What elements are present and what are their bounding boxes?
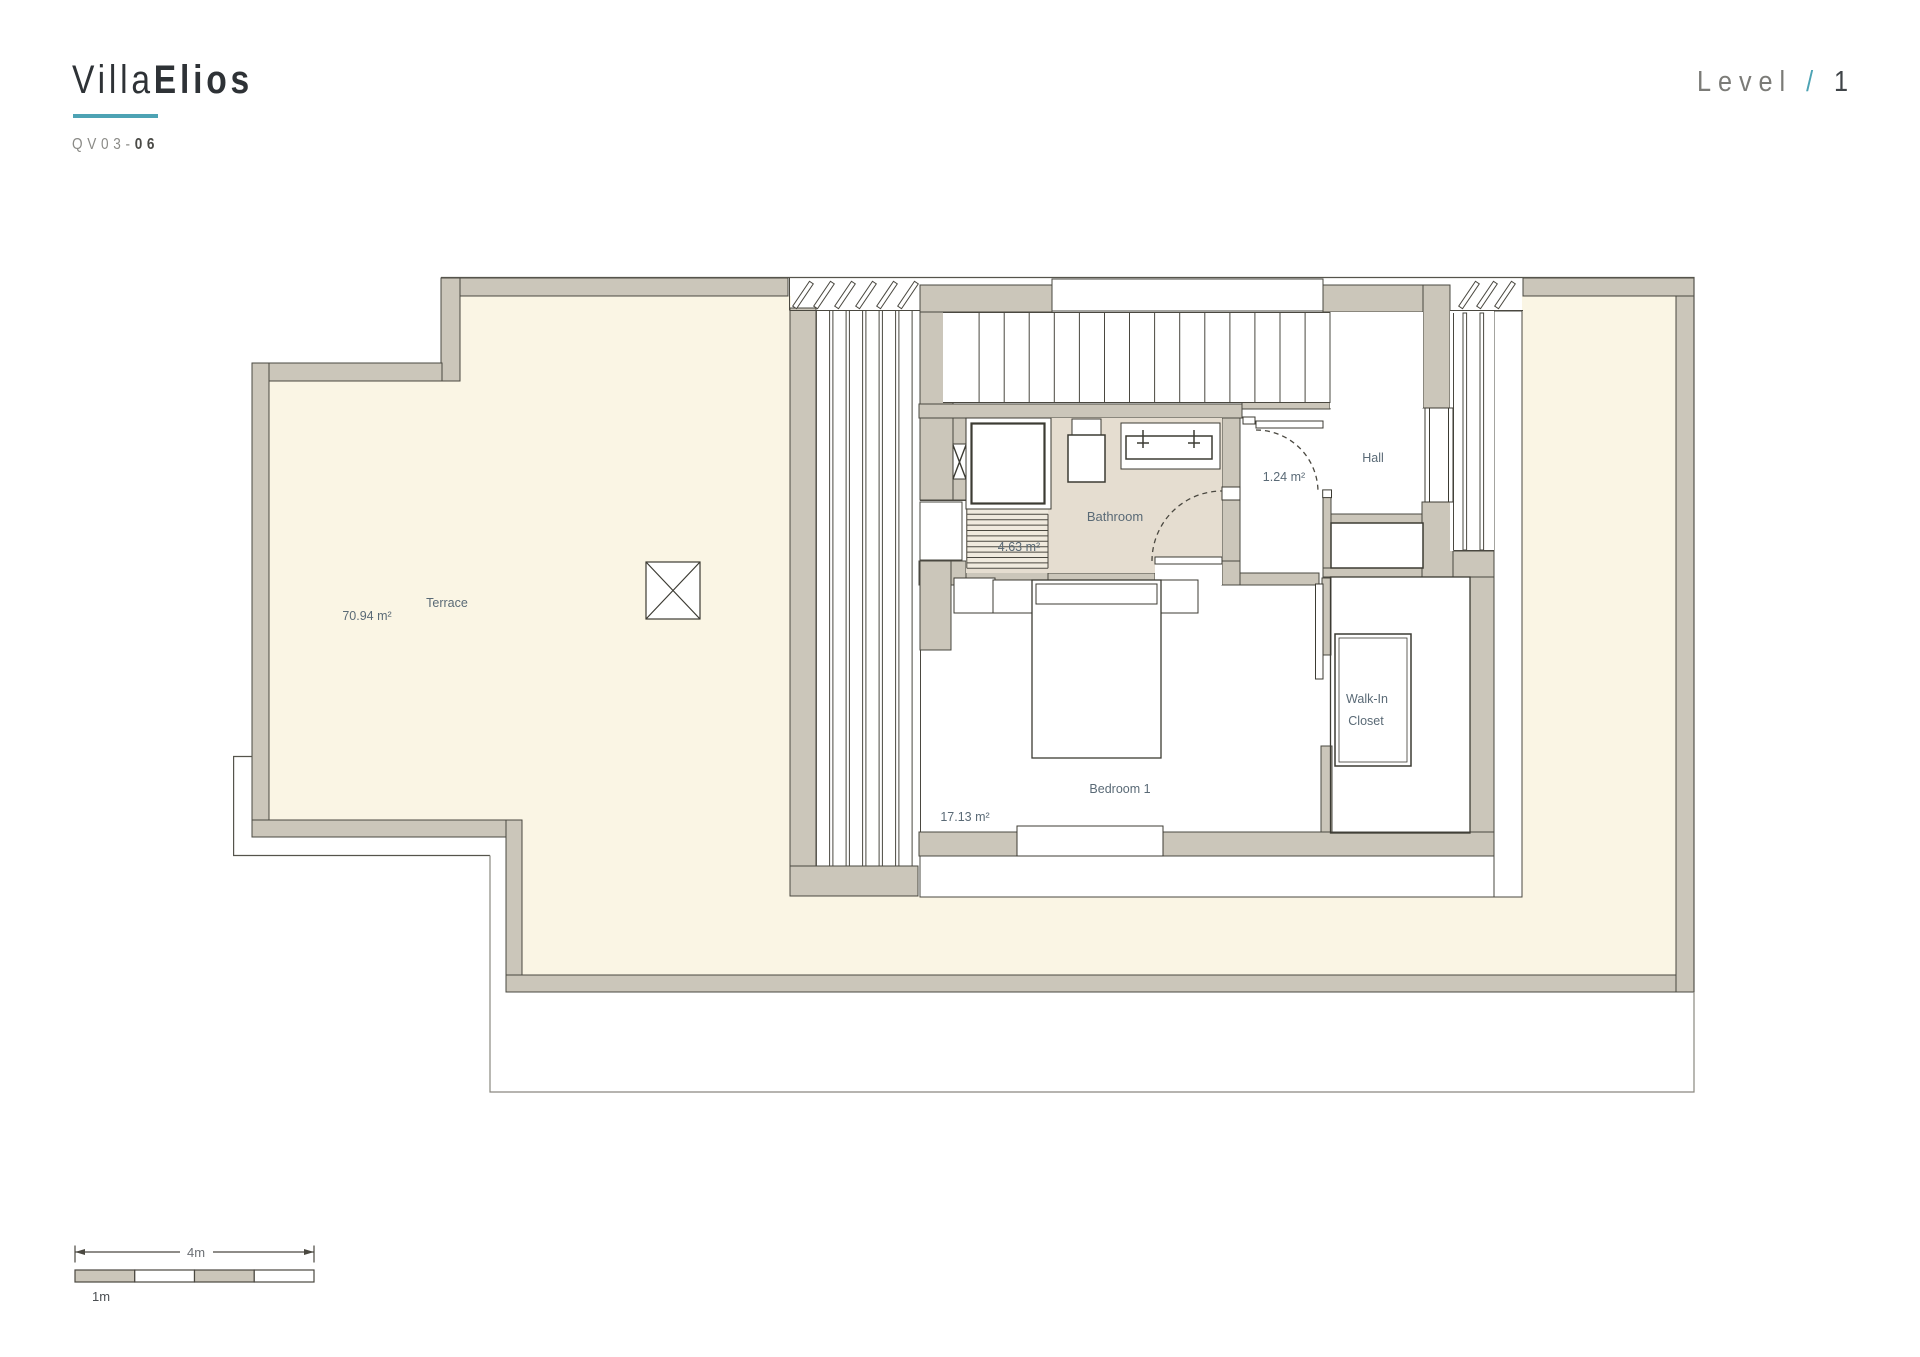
svg-text:17.13 m²: 17.13 m²: [940, 810, 989, 824]
svg-text:1.24 m²: 1.24 m²: [1263, 470, 1305, 484]
svg-text:Walk-In: Walk-In: [1346, 692, 1388, 706]
svg-text:Hall: Hall: [1362, 451, 1384, 465]
svg-text:Bathroom: Bathroom: [1087, 509, 1143, 524]
svg-text:70.94 m²: 70.94 m²: [342, 609, 391, 623]
svg-text:4m: 4m: [187, 1245, 205, 1260]
svg-text:Closet: Closet: [1348, 714, 1384, 728]
svg-text:4.63 m²: 4.63 m²: [998, 540, 1040, 554]
svg-text:1m: 1m: [92, 1289, 110, 1304]
svg-text:Terrace: Terrace: [426, 596, 468, 610]
svg-text:Bedroom 1: Bedroom 1: [1089, 782, 1150, 796]
